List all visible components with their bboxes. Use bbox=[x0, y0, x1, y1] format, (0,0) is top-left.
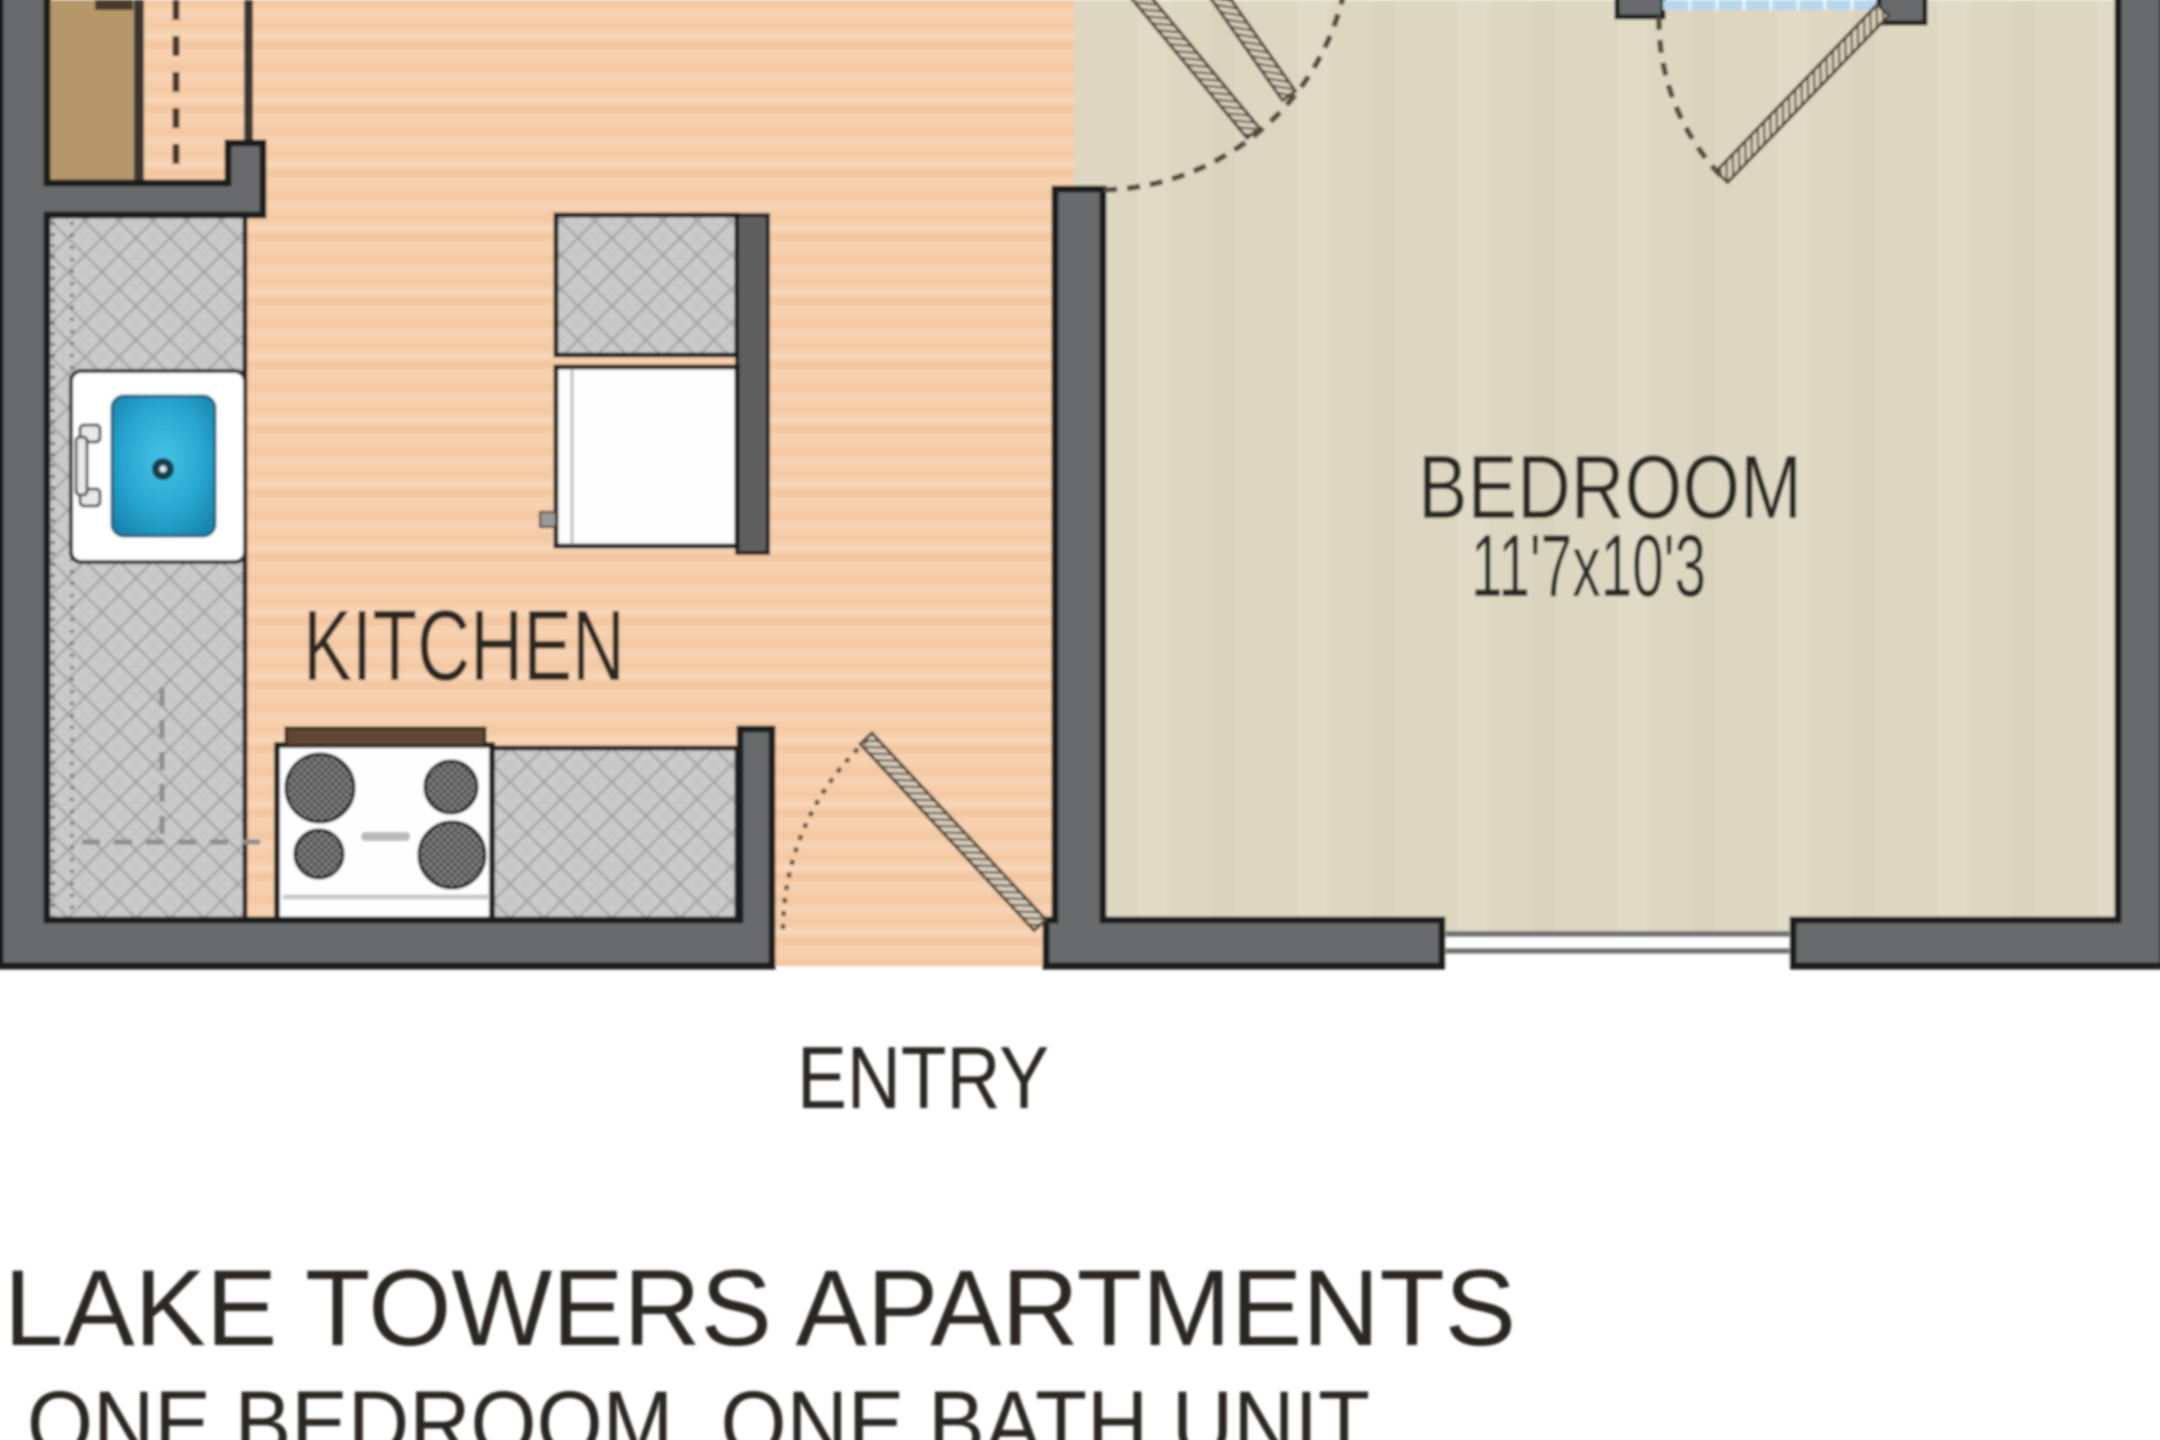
svg-text:LAKE TOWERS APARTMENTS: LAKE TOWERS APARTMENTS bbox=[4, 1247, 1516, 1368]
svg-text:KITCHEN: KITCHEN bbox=[303, 590, 625, 702]
svg-text:ENTRY: ENTRY bbox=[797, 1028, 1049, 1127]
svg-text:ONE BEDROOM, ONE BATH UNIT: ONE BEDROOM, ONE BATH UNIT bbox=[27, 1373, 1370, 1440]
svg-text:11'7x10'3: 11'7x10'3 bbox=[1471, 516, 1706, 615]
